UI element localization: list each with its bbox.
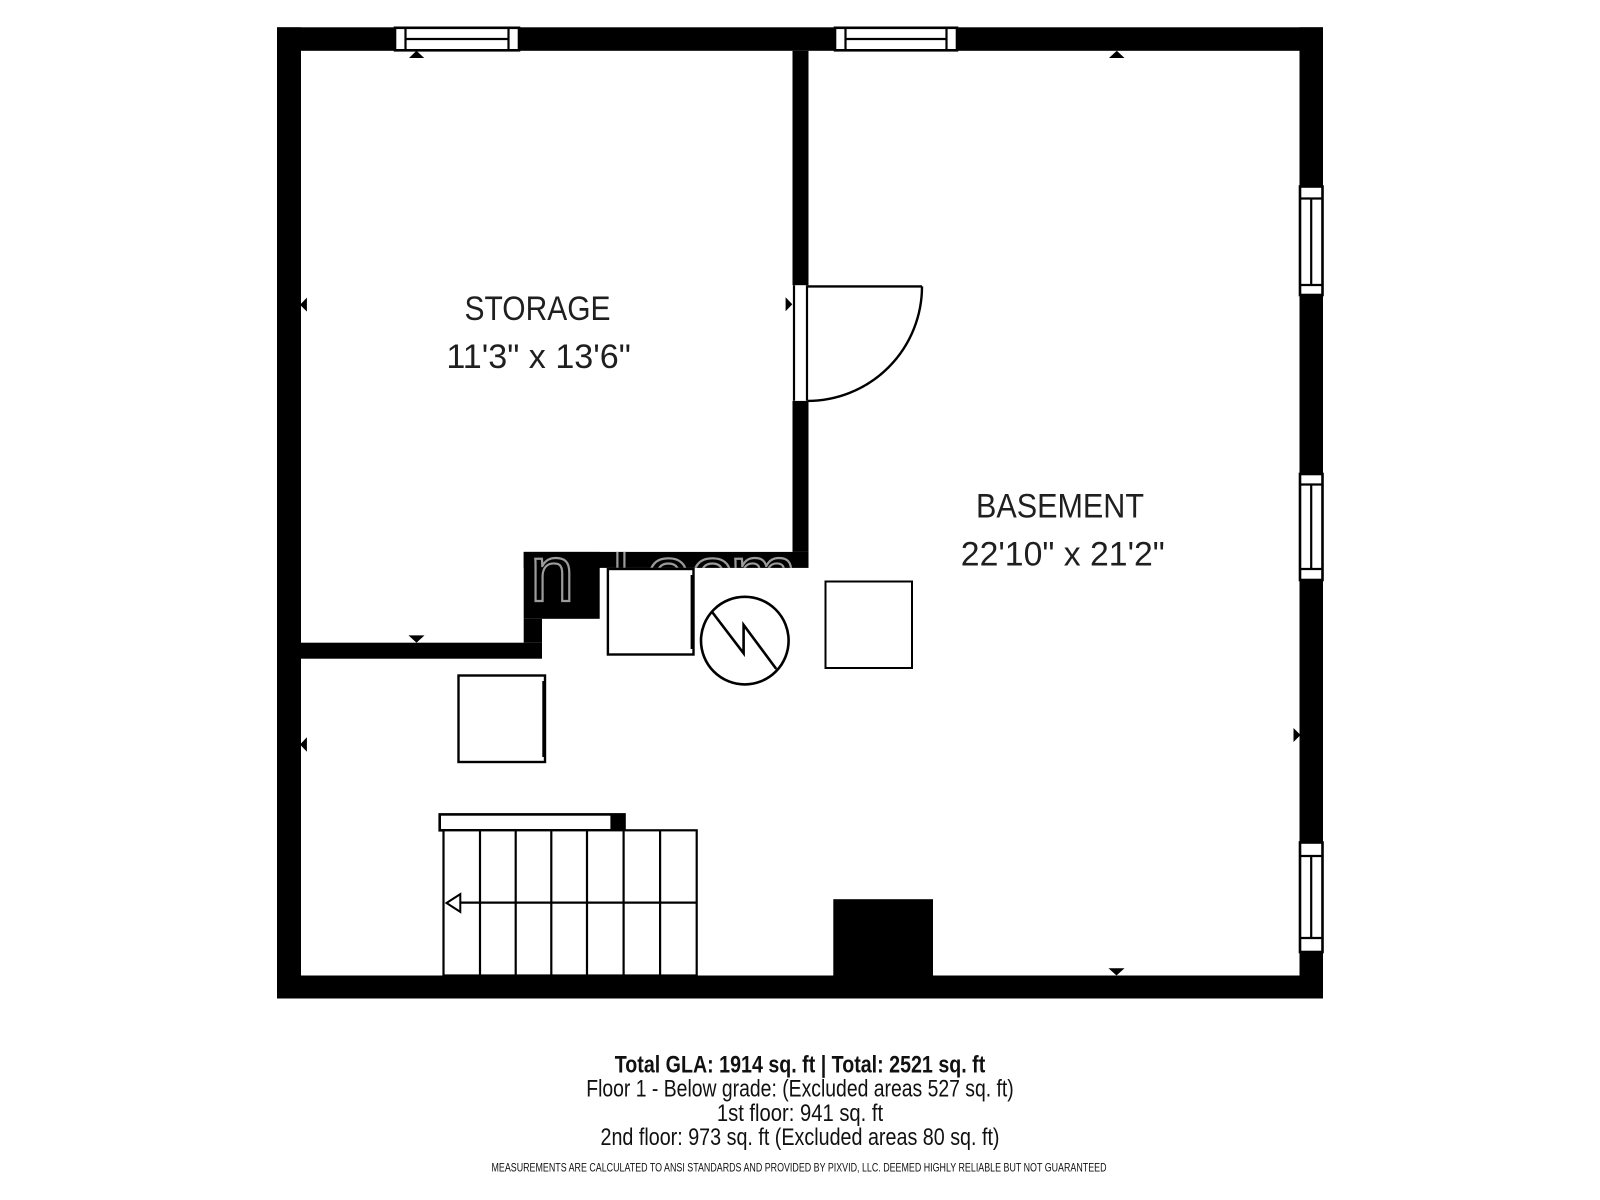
- svg-text:MEASUREMENTS ARE CALCULATED TO: MEASUREMENTS ARE CALCULATED TO ANSI STAN…: [492, 1161, 1107, 1175]
- svg-text:22'10" x 21'2": 22'10" x 21'2": [961, 536, 1165, 574]
- svg-text:2nd floor: 973 sq. ft (Exclude: 2nd floor: 973 sq. ft (Excluded areas 80…: [601, 1124, 1000, 1151]
- svg-text:Floor 1 - Below grade: (Exclud: Floor 1 - Below grade: (Excluded areas 5…: [586, 1076, 1014, 1103]
- svg-text:BASEMENT: BASEMENT: [976, 488, 1144, 526]
- svg-text:STORAGE: STORAGE: [465, 290, 611, 328]
- svg-text:1st floor: 941 sq. ft: 1st floor: 941 sq. ft: [717, 1100, 883, 1127]
- svg-text:11'3" x 13'6": 11'3" x 13'6": [446, 338, 631, 376]
- svg-text:Total GLA: 1914 sq. ft | Total: Total GLA: 1914 sq. ft | Total: 2521 sq.…: [615, 1052, 986, 1079]
